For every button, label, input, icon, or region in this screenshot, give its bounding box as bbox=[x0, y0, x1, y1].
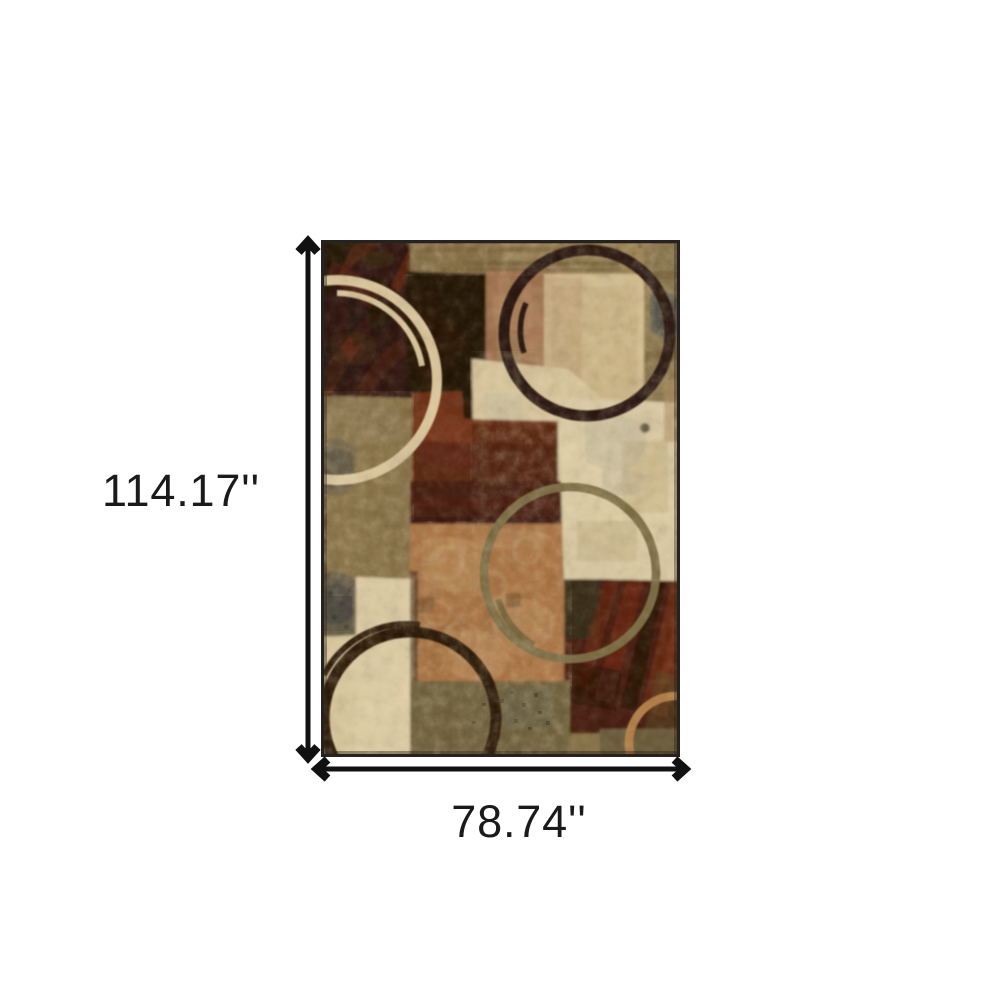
svg-text:114.17'': 114.17'' bbox=[102, 465, 260, 516]
svg-text:78.74'': 78.74'' bbox=[451, 796, 586, 847]
